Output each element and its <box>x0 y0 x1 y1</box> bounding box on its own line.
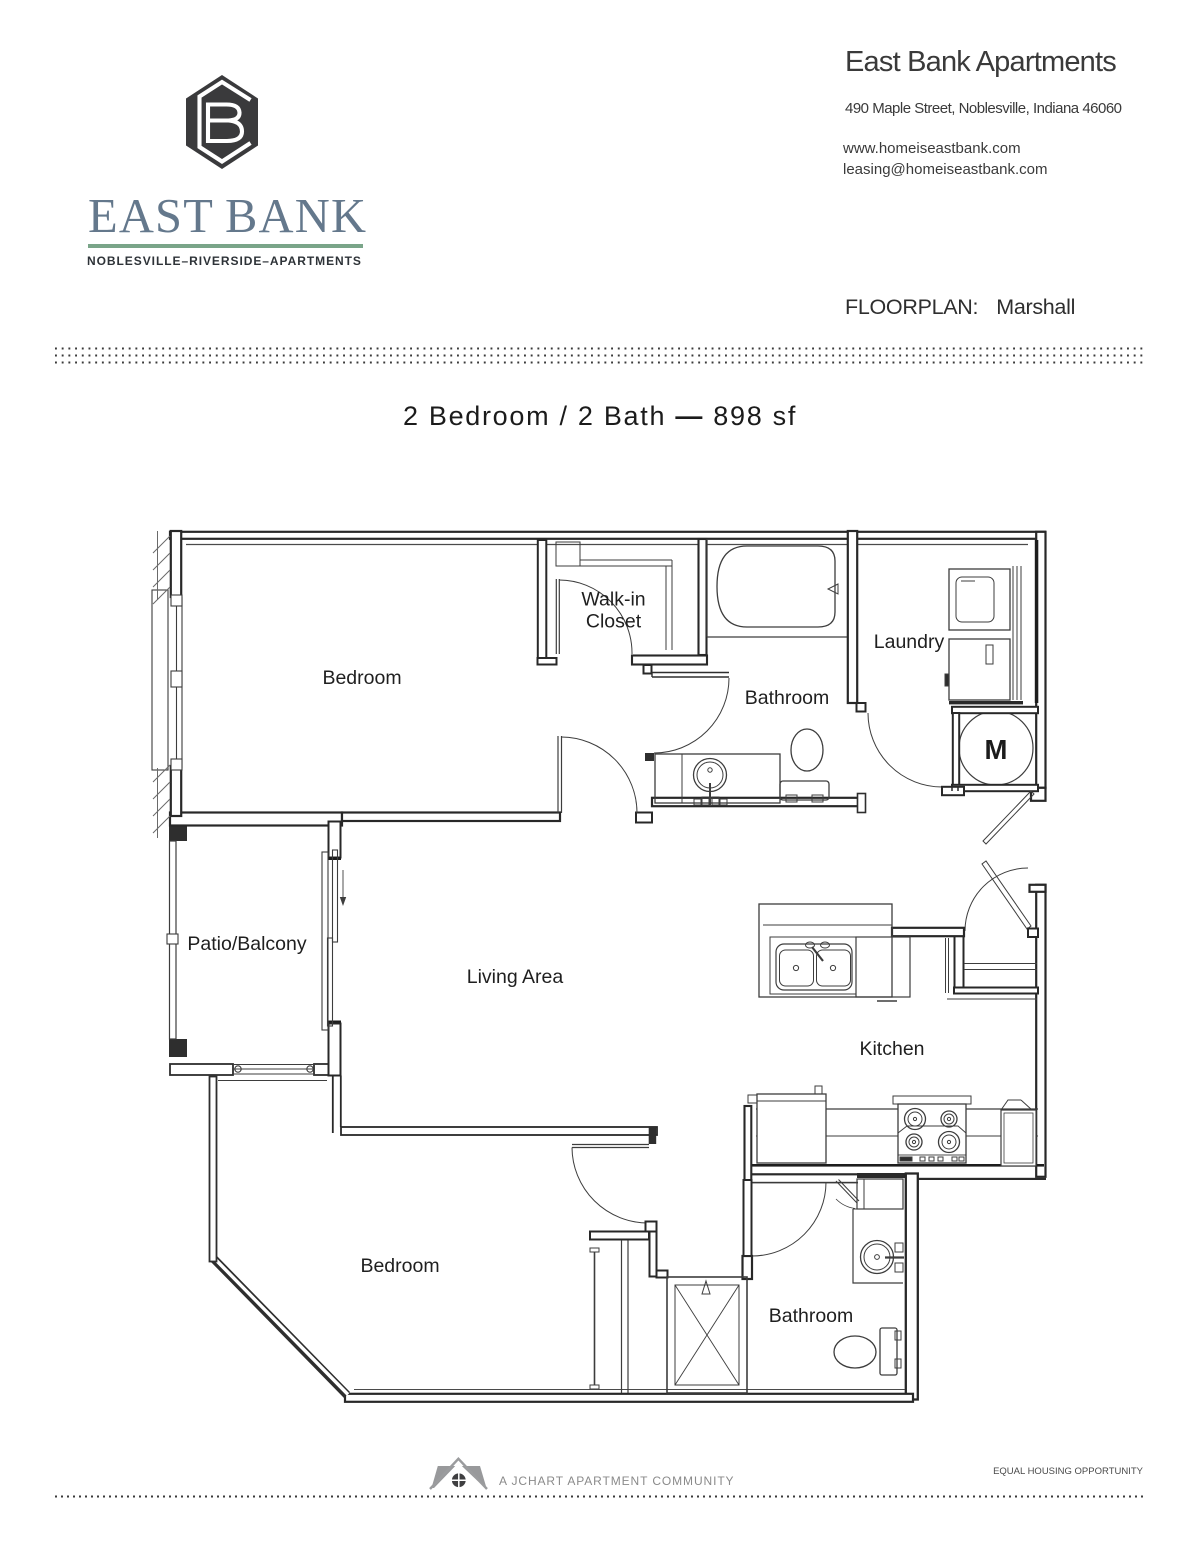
svg-text:Bedroom: Bedroom <box>360 1255 439 1277</box>
svg-text:Patio/Balcony: Patio/Balcony <box>187 933 306 955</box>
svg-text:Bedroom: Bedroom <box>322 667 401 689</box>
svg-text:Bathroom: Bathroom <box>745 687 830 709</box>
svg-text:Closet: Closet <box>586 611 642 633</box>
svg-text:Kitchen: Kitchen <box>859 1038 924 1060</box>
svg-text:Walk-in: Walk-in <box>581 589 645 611</box>
svg-text:Bathroom: Bathroom <box>769 1305 854 1327</box>
svg-text:Living Area: Living Area <box>467 966 564 988</box>
svg-text:M: M <box>985 734 1008 765</box>
svg-text:Laundry: Laundry <box>874 631 945 653</box>
